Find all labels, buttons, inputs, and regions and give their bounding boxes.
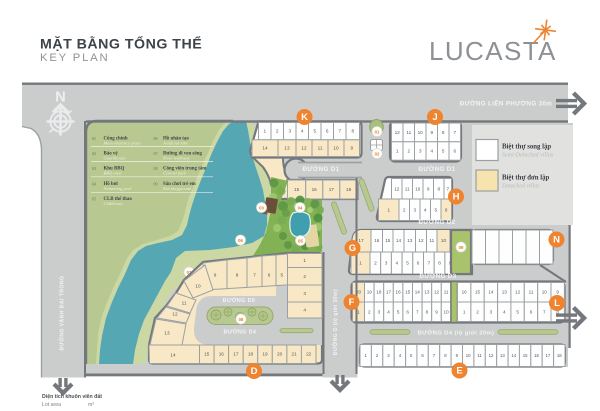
svg-text:09: 09 bbox=[459, 245, 464, 250]
svg-text:15: 15 bbox=[523, 353, 528, 358]
svg-text:8: 8 bbox=[442, 130, 445, 135]
svg-text:8: 8 bbox=[426, 309, 429, 314]
svg-text:1: 1 bbox=[359, 261, 362, 266]
svg-text:16: 16 bbox=[374, 238, 380, 243]
svg-text:08: 08 bbox=[154, 166, 158, 171]
svg-text:14: 14 bbox=[262, 146, 268, 151]
svg-text:River walkway: River walkway bbox=[162, 156, 190, 161]
svg-text:6: 6 bbox=[445, 207, 448, 212]
svg-text:Clubhouse: Clubhouse bbox=[104, 201, 123, 206]
svg-text:ĐƯỜNG D1: ĐƯỜNG D1 bbox=[419, 165, 456, 173]
svg-text:8: 8 bbox=[438, 261, 441, 266]
svg-text:10: 10 bbox=[466, 353, 471, 358]
svg-text:15: 15 bbox=[385, 238, 391, 243]
svg-text:02: 02 bbox=[92, 151, 96, 156]
svg-text:17: 17 bbox=[386, 290, 392, 295]
svg-text:1: 1 bbox=[463, 309, 466, 314]
svg-text:2: 2 bbox=[276, 129, 279, 134]
svg-text:7: 7 bbox=[253, 273, 256, 278]
svg-text:10: 10 bbox=[195, 284, 201, 289]
svg-text:12: 12 bbox=[301, 146, 307, 151]
svg-text:17: 17 bbox=[233, 352, 239, 357]
svg-text:Semi-Detached villas: Semi-Detached villas bbox=[502, 153, 554, 159]
svg-text:17: 17 bbox=[546, 353, 551, 358]
svg-text:17: 17 bbox=[329, 187, 335, 192]
svg-text:1: 1 bbox=[303, 258, 306, 263]
svg-text:Biệt thự đơn lập: Biệt thự đơn lập bbox=[502, 175, 550, 182]
svg-text:5: 5 bbox=[516, 309, 519, 314]
svg-text:04: 04 bbox=[92, 182, 96, 187]
svg-text:18: 18 bbox=[557, 353, 562, 358]
svg-text:4: 4 bbox=[301, 129, 304, 134]
svg-text:9: 9 bbox=[214, 273, 217, 278]
svg-text:ĐƯỜNG LIÊN PHƯỜNG 30m: ĐƯỜNG LIÊN PHƯỜNG 30m bbox=[460, 100, 553, 108]
svg-text:J: J bbox=[432, 112, 437, 123]
svg-text:H: H bbox=[453, 191, 460, 202]
svg-text:Main entrance plaza: Main entrance plaza bbox=[103, 141, 142, 146]
svg-text:08: 08 bbox=[239, 317, 244, 322]
svg-text:10: 10 bbox=[441, 238, 447, 243]
svg-text:5: 5 bbox=[313, 129, 316, 134]
svg-text:5: 5 bbox=[397, 309, 400, 314]
svg-text:16: 16 bbox=[312, 187, 318, 192]
svg-text:6: 6 bbox=[453, 149, 456, 154]
svg-text:12: 12 bbox=[418, 238, 424, 243]
svg-text:01: 01 bbox=[375, 129, 380, 134]
svg-text:G: G bbox=[349, 243, 356, 254]
svg-text:Swimming pool: Swimming pool bbox=[104, 186, 133, 191]
svg-text:14: 14 bbox=[488, 290, 494, 295]
svg-text:ĐƯỜNG D (lộ giới 30m): ĐƯỜNG D (lộ giới 30m) bbox=[331, 289, 339, 355]
svg-text:18: 18 bbox=[346, 187, 352, 192]
svg-text:12: 12 bbox=[172, 312, 178, 317]
svg-text:6: 6 bbox=[417, 261, 420, 266]
svg-text:4: 4 bbox=[303, 308, 306, 313]
svg-text:7: 7 bbox=[543, 309, 546, 314]
svg-text:4: 4 bbox=[503, 309, 506, 314]
svg-text:04: 04 bbox=[298, 205, 303, 210]
svg-text:14: 14 bbox=[415, 290, 421, 295]
svg-text:3: 3 bbox=[385, 261, 388, 266]
svg-text:2: 2 bbox=[303, 274, 306, 279]
svg-text:ĐƯỜNG D3: ĐƯỜNG D3 bbox=[420, 272, 457, 280]
svg-text:5: 5 bbox=[434, 207, 437, 212]
svg-text:4: 4 bbox=[430, 149, 433, 154]
svg-text:13: 13 bbox=[407, 238, 413, 243]
svg-text:3: 3 bbox=[378, 309, 381, 314]
svg-text:12: 12 bbox=[515, 290, 521, 295]
svg-text:1: 1 bbox=[263, 129, 266, 134]
svg-text:6: 6 bbox=[268, 273, 271, 278]
svg-text:12: 12 bbox=[489, 353, 494, 358]
svg-text:03: 03 bbox=[92, 166, 96, 171]
svg-text:MẶT BẰNG TỔNG THỂ: MẶT BẰNG TỔNG THỂ bbox=[40, 35, 202, 53]
svg-text:14: 14 bbox=[396, 238, 402, 243]
svg-text:12: 12 bbox=[394, 186, 400, 191]
svg-text:6: 6 bbox=[406, 309, 409, 314]
svg-text:KEY PLAN: KEY PLAN bbox=[40, 52, 109, 64]
svg-text:BBQ area: BBQ area bbox=[104, 171, 123, 176]
svg-text:16: 16 bbox=[534, 353, 539, 358]
svg-text:10: 10 bbox=[415, 186, 421, 191]
svg-text:13: 13 bbox=[500, 353, 505, 358]
svg-text:15: 15 bbox=[405, 290, 411, 295]
svg-text:02: 02 bbox=[375, 151, 380, 156]
svg-text:7: 7 bbox=[446, 186, 449, 191]
svg-text:ĐƯỜNG D4: ĐƯỜNG D4 bbox=[224, 328, 257, 336]
svg-text:1: 1 bbox=[387, 207, 390, 212]
svg-text:7: 7 bbox=[428, 261, 431, 266]
svg-text:ĐƯỜNG D1: ĐƯỜNG D1 bbox=[303, 165, 340, 173]
svg-text:2: 2 bbox=[403, 207, 406, 212]
svg-text:09: 09 bbox=[154, 182, 158, 187]
svg-text:13: 13 bbox=[424, 290, 430, 295]
svg-text:11: 11 bbox=[182, 301, 187, 306]
svg-text:2: 2 bbox=[476, 309, 479, 314]
svg-text:7: 7 bbox=[416, 309, 419, 314]
svg-text:Biệt thự song lập: Biệt thự song lập bbox=[502, 144, 551, 151]
svg-text:ĐƯỜNG VÀNH ĐAI TRONG: ĐƯỜNG VÀNH ĐAI TRONG bbox=[58, 276, 66, 351]
svg-text:18: 18 bbox=[248, 352, 254, 357]
svg-text:ĐƯỜNG D4 (lộ giới 20m): ĐƯỜNG D4 (lộ giới 20m) bbox=[418, 329, 495, 337]
svg-text:20: 20 bbox=[277, 352, 283, 357]
svg-text:2: 2 bbox=[368, 309, 371, 314]
svg-text:13: 13 bbox=[284, 146, 290, 151]
svg-text:05: 05 bbox=[298, 238, 303, 243]
svg-text:5: 5 bbox=[406, 261, 409, 266]
svg-text:05: 05 bbox=[92, 197, 96, 202]
svg-text:L: L bbox=[554, 298, 560, 309]
svg-text:18: 18 bbox=[376, 290, 382, 295]
svg-text:14: 14 bbox=[511, 353, 516, 358]
svg-text:9: 9 bbox=[556, 290, 559, 295]
svg-text:2: 2 bbox=[374, 261, 377, 266]
svg-text:9: 9 bbox=[430, 130, 433, 135]
svg-text:13: 13 bbox=[164, 331, 170, 336]
svg-text:8: 8 bbox=[236, 273, 239, 278]
svg-text:16: 16 bbox=[219, 352, 225, 357]
svg-text:10: 10 bbox=[542, 290, 548, 295]
svg-text:17: 17 bbox=[358, 238, 364, 243]
svg-text:16: 16 bbox=[462, 290, 468, 295]
svg-text:4: 4 bbox=[424, 207, 427, 212]
svg-text:3: 3 bbox=[303, 291, 306, 296]
svg-text:9: 9 bbox=[427, 186, 430, 191]
svg-text:19: 19 bbox=[262, 352, 268, 357]
svg-text:19: 19 bbox=[367, 290, 373, 295]
svg-text:07: 07 bbox=[154, 151, 158, 156]
svg-text:3: 3 bbox=[288, 129, 291, 134]
svg-text:D: D bbox=[251, 366, 258, 377]
svg-text:LUCASTA: LUCASTA bbox=[429, 36, 557, 66]
svg-text:11: 11 bbox=[529, 290, 534, 295]
svg-text:10: 10 bbox=[333, 146, 339, 151]
svg-text:m²: m² bbox=[88, 402, 94, 408]
svg-text:Lot area: Lot area bbox=[42, 402, 61, 408]
svg-text:01: 01 bbox=[92, 136, 96, 141]
svg-text:1: 1 bbox=[396, 149, 399, 154]
svg-text:7: 7 bbox=[338, 129, 341, 134]
svg-text:13: 13 bbox=[502, 290, 508, 295]
svg-text:11: 11 bbox=[444, 290, 449, 295]
svg-text:3: 3 bbox=[490, 309, 493, 314]
svg-text:11: 11 bbox=[477, 353, 482, 358]
svg-text:21: 21 bbox=[291, 352, 297, 357]
svg-text:Detached villas: Detached villas bbox=[501, 184, 540, 190]
svg-text:6: 6 bbox=[530, 309, 533, 314]
svg-text:03: 03 bbox=[259, 205, 264, 210]
svg-text:1: 1 bbox=[357, 309, 360, 314]
svg-text:5: 5 bbox=[280, 273, 283, 278]
svg-text:6: 6 bbox=[326, 129, 329, 134]
svg-text:2: 2 bbox=[407, 149, 410, 154]
svg-text:22: 22 bbox=[306, 352, 312, 357]
svg-text:06: 06 bbox=[238, 238, 243, 243]
svg-text:Kid playground: Kid playground bbox=[162, 186, 192, 191]
svg-text:12: 12 bbox=[434, 290, 440, 295]
svg-text:8: 8 bbox=[351, 129, 354, 134]
svg-text:K: K bbox=[301, 112, 308, 123]
svg-text:16: 16 bbox=[396, 290, 402, 295]
svg-text:15: 15 bbox=[475, 290, 481, 295]
svg-text:4: 4 bbox=[395, 261, 398, 266]
svg-text:Central park: Central park bbox=[163, 171, 187, 176]
svg-text:12: 12 bbox=[395, 130, 401, 135]
svg-text:3: 3 bbox=[419, 149, 422, 154]
svg-text:5: 5 bbox=[442, 149, 445, 154]
svg-text:E: E bbox=[456, 365, 462, 376]
svg-text:7: 7 bbox=[453, 130, 456, 135]
svg-text:ĐƯỜNG D2: ĐƯỜNG D2 bbox=[419, 218, 456, 226]
svg-text:4: 4 bbox=[387, 309, 390, 314]
svg-text:ĐƯỜNG D5: ĐƯỜNG D5 bbox=[223, 296, 256, 304]
svg-text:10: 10 bbox=[444, 309, 450, 314]
svg-text:11: 11 bbox=[318, 146, 323, 151]
svg-text:8: 8 bbox=[437, 186, 440, 191]
svg-text:Guardhouse: Guardhouse bbox=[104, 156, 126, 161]
svg-text:11: 11 bbox=[429, 238, 434, 243]
svg-text:15: 15 bbox=[204, 352, 210, 357]
svg-text:10: 10 bbox=[418, 130, 424, 135]
svg-text:Diện tích khuôn viên đất: Diện tích khuôn viên đất bbox=[42, 393, 102, 400]
svg-text:11: 11 bbox=[405, 186, 410, 191]
svg-text:3: 3 bbox=[413, 207, 416, 212]
svg-text:9: 9 bbox=[435, 309, 438, 314]
svg-text:Artificial lake: Artificial lake bbox=[162, 141, 188, 146]
svg-text:11: 11 bbox=[406, 130, 411, 135]
svg-text:N: N bbox=[553, 234, 560, 245]
svg-text:F: F bbox=[349, 297, 355, 308]
svg-text:15: 15 bbox=[294, 187, 300, 192]
svg-text:N: N bbox=[55, 90, 65, 106]
svg-text:14: 14 bbox=[170, 353, 176, 358]
svg-text:9: 9 bbox=[350, 146, 353, 151]
svg-text:06: 06 bbox=[154, 136, 158, 141]
